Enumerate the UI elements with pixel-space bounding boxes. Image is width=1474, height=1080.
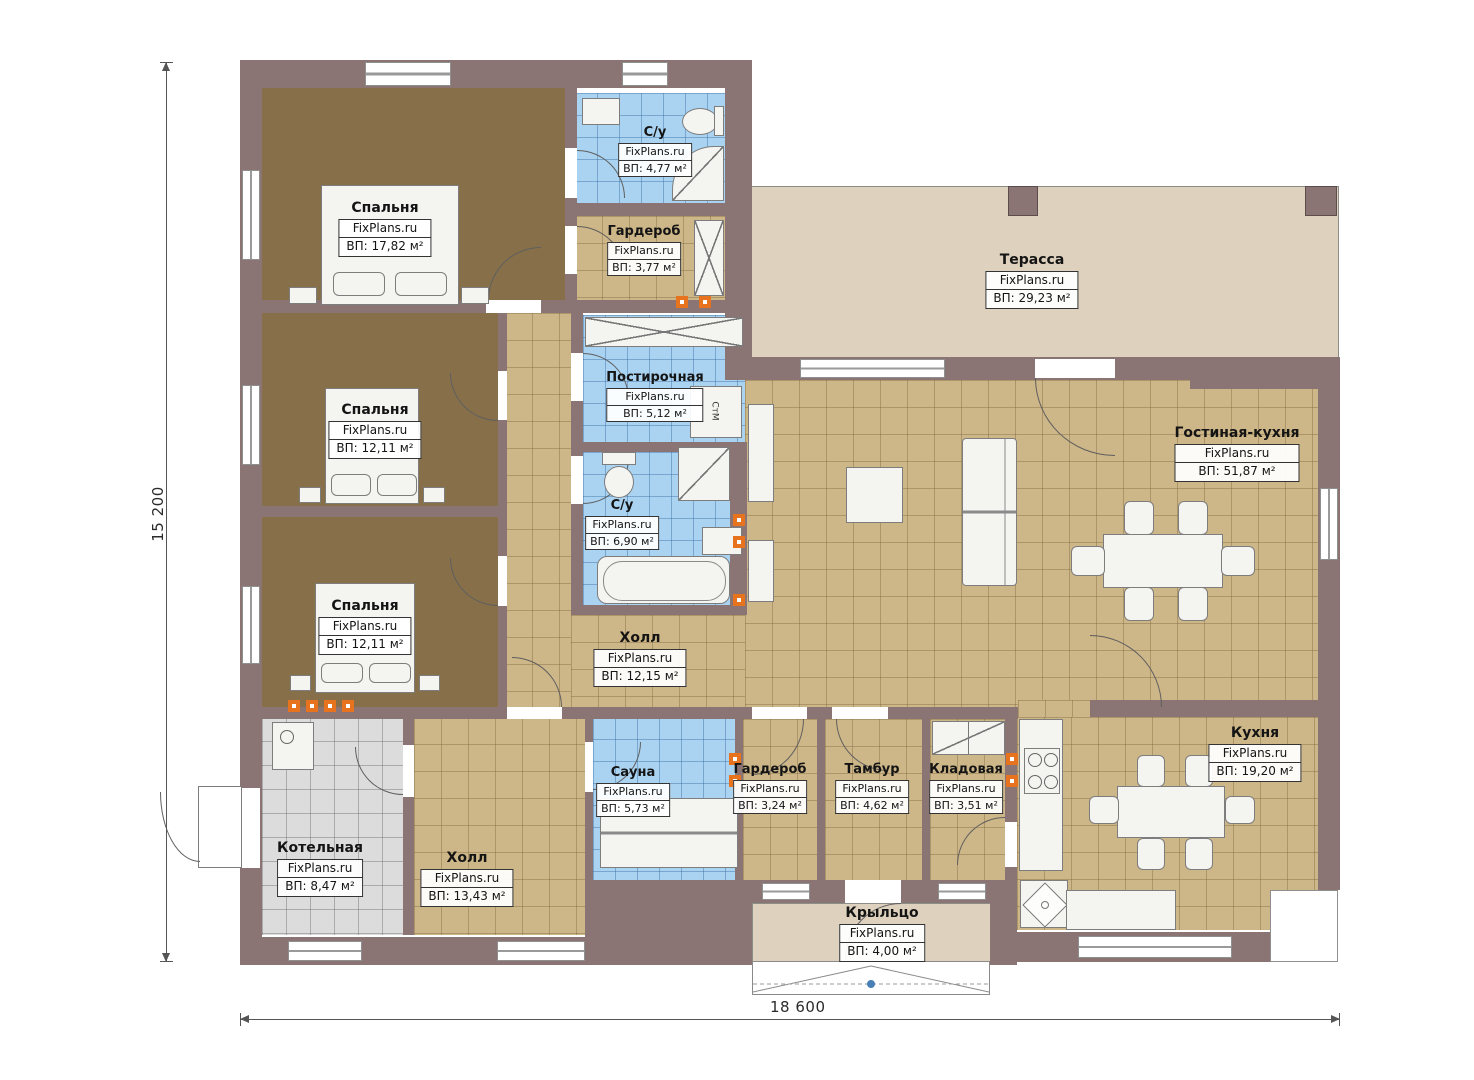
utility-marker (342, 700, 354, 712)
watermark: FixPlans.ru (277, 859, 363, 878)
room-name: Холл (420, 850, 513, 867)
watermark: FixPlans.ru (328, 421, 421, 440)
wall-outer-top (240, 60, 752, 88)
room-name: Постирочная (606, 370, 703, 386)
room-area: ВП: 4,77 м² (618, 161, 692, 178)
watermark: FixPlans.ru (733, 780, 807, 798)
sink-drain (1041, 901, 1049, 909)
kitchen-counter (1019, 719, 1063, 871)
room-label-bedroom-3: Спальня FixPlans.ru ВП: 12,11 м² (318, 598, 411, 655)
watermark: FixPlans.ru (420, 869, 513, 888)
chair (1225, 796, 1255, 824)
watermark: FixPlans.ru (618, 143, 692, 161)
door-gap-laundry (571, 353, 583, 401)
room-name: Терасса (985, 252, 1078, 269)
kitchen-table (1117, 786, 1225, 838)
door-gap-boiler-exterior (242, 788, 260, 868)
utility-marker (1006, 753, 1018, 765)
floor-plan: СтМ (0, 0, 1474, 1080)
chair (1124, 501, 1154, 535)
wall-su1-wardrobe-divider (565, 203, 752, 216)
dimension-arrow-left (240, 1015, 249, 1023)
watermark: FixPlans.ru (985, 271, 1078, 290)
utility-marker (676, 296, 688, 308)
nightstand (290, 675, 311, 691)
room-name: Сауна (596, 765, 670, 781)
door-gap-boiler (403, 745, 414, 797)
dimension-line-horizontal (240, 1019, 1340, 1020)
room-name: Крыльцо (839, 905, 925, 922)
chair (1124, 587, 1154, 621)
utility-marker (306, 700, 318, 712)
watermark: FixPlans.ru (835, 780, 909, 798)
watermark: FixPlans.ru (585, 516, 659, 534)
watermark: FixPlans.ru (1174, 444, 1299, 463)
chair (1221, 546, 1255, 576)
window-living-right (1320, 488, 1338, 560)
wall-bedroom2-3-divider (240, 506, 498, 517)
room-name: Холл (593, 630, 686, 647)
chair (1178, 587, 1208, 621)
wall-su2-bottom (571, 605, 747, 615)
door-gap-bedroom3 (498, 556, 507, 606)
coffee-table (846, 467, 903, 523)
room-name: Спальня (338, 200, 431, 217)
nightstand (461, 287, 489, 304)
door-gap-storage (1005, 822, 1017, 867)
room-label-storage: Кладовая FixPlans.ru ВП: 3,51 м² (929, 762, 1003, 814)
room-name: Гостиная-кухня (1174, 425, 1299, 442)
room-area: ВП: 4,62 м² (835, 798, 909, 815)
room-label-boiler: Котельная FixPlans.ru ВП: 8,47 м² (277, 840, 363, 897)
dining-table (1103, 534, 1223, 588)
bathtub-inner (603, 561, 726, 601)
room-name: Кухня (1208, 725, 1301, 742)
room-area: ВП: 12,11 м² (318, 636, 411, 654)
burner (1028, 753, 1042, 767)
wall-sauna-south-block (585, 880, 752, 937)
door-gap-bedroom2 (498, 371, 507, 420)
watermark: FixPlans.ru (318, 617, 411, 636)
window-bedroom1-top (365, 62, 451, 86)
watermark: FixPlans.ru (593, 649, 686, 668)
burner (1044, 775, 1058, 789)
toilet-tank (602, 452, 636, 465)
exterior-door-leaf (198, 786, 242, 868)
door-gap-terrace (1035, 359, 1115, 378)
porch-steps-ramp (753, 962, 989, 994)
room-name: Кладовая (929, 762, 1003, 778)
watermark: FixPlans.ru (839, 924, 925, 943)
room-name: Спальня (318, 598, 411, 615)
corridor-floor (505, 313, 571, 707)
wardrobe-cabinet (694, 220, 724, 296)
room-area: ВП: 51,87 м² (1174, 463, 1299, 481)
room-area: ВП: 17,82 м² (338, 238, 431, 256)
room-area: ВП: 4,00 м² (839, 943, 925, 961)
room-area: ВП: 3,77 м² (607, 260, 681, 277)
room-label-laundry: Постирочная FixPlans.ru ВП: 5,12 м² (606, 370, 703, 422)
dimension-arrow-right (1331, 1015, 1340, 1023)
porch-steps (752, 961, 990, 995)
wall-living-corner (1190, 357, 1318, 389)
window-entry-left (762, 883, 810, 900)
wall-outer-right (1318, 357, 1340, 890)
nightstand (419, 675, 440, 691)
door-gap-vestibule (832, 707, 888, 719)
washbasin (582, 98, 620, 125)
door-gap-wardrobe1 (565, 226, 577, 274)
bed-pillow (377, 474, 417, 496)
room-name: С/у (618, 125, 692, 141)
room-label-vestibule: Тамбур FixPlans.ru ВП: 4,62 м² (835, 762, 909, 814)
room-area: ВП: 13,43 м² (420, 888, 513, 906)
utility-marker (733, 514, 745, 526)
room-label-terrace: Терасса FixPlans.ru ВП: 29,23 м² (985, 252, 1078, 309)
boiler-unit (272, 722, 314, 770)
chair (1137, 838, 1165, 870)
nightstand (299, 487, 321, 503)
bed-pillow (321, 663, 363, 683)
sofa (962, 438, 1017, 586)
room-area: ВП: 12,15 м² (593, 668, 686, 686)
room-label-hall-2: Холл FixPlans.ru ВП: 13,43 м² (420, 850, 513, 907)
room-name: Тамбур (835, 762, 909, 778)
door-gap-bedroom1 (486, 300, 541, 313)
dimension-label-vertical: 15 200 (149, 486, 167, 542)
utility-marker (733, 594, 745, 606)
room-area: ВП: 3,24 м² (733, 798, 807, 815)
wall-porch-right-column (990, 880, 1017, 965)
window-hall2-bottom (497, 941, 585, 961)
window-kitchen-bottom (1078, 936, 1232, 958)
boiler-dial (280, 730, 294, 744)
door-gap-bathroom1 (565, 148, 577, 198)
room-label-living-kitchen: Гостиная-кухня FixPlans.ru ВП: 51,87 м² (1174, 425, 1299, 482)
stove (1024, 748, 1060, 794)
dimension-label-horizontal: 18 600 (770, 998, 826, 1016)
watermark: FixPlans.ru (607, 242, 681, 260)
room-area: ВП: 6,90 м² (585, 534, 659, 551)
chair (1071, 546, 1105, 576)
door-gap-bathroom2 (571, 456, 583, 504)
shower (678, 447, 730, 501)
chair (1137, 755, 1165, 787)
window-bathroom1-top (622, 62, 668, 86)
room-area: ВП: 5,12 м² (606, 406, 703, 423)
watermark: FixPlans.ru (338, 219, 431, 238)
watermark: FixPlans.ru (596, 783, 670, 801)
room-label-wardrobe-2: Гардероб FixPlans.ru ВП: 3,24 м² (733, 762, 807, 814)
dimension-arrow-up (162, 62, 170, 71)
wall-hall-bottom (240, 707, 1018, 719)
room-area: ВП: 29,23 м² (985, 290, 1078, 308)
room-area: ВП: 12,11 м² (328, 440, 421, 458)
chair (1178, 501, 1208, 535)
room-label-wardrobe-1: Гардероб FixPlans.ru ВП: 3,77 м² (607, 224, 681, 276)
room-label-sauna: Сауна FixPlans.ru ВП: 5,73 м² (596, 765, 670, 817)
kitchen-counter (1066, 890, 1176, 930)
corner-step (1270, 890, 1338, 962)
room-name: Гардероб (733, 762, 807, 778)
toilet-bowl (604, 466, 634, 498)
watermark: FixPlans.ru (929, 780, 1003, 798)
burner (1028, 775, 1042, 789)
door-gap-wardrobe2 (752, 707, 807, 719)
dimension-arrow-down (162, 953, 170, 962)
room-name: Гардероб (607, 224, 681, 240)
terrace-column-left (1008, 186, 1038, 216)
tall-cabinet (748, 404, 774, 502)
room-area: ВП: 5,73 м² (596, 801, 670, 818)
wall-wardrobe2-right (817, 719, 825, 880)
chair (1185, 838, 1213, 870)
room-area: ВП: 3,51 м² (929, 798, 1003, 815)
utility-marker (699, 296, 711, 308)
room-area: ВП: 19,20 м² (1208, 763, 1301, 781)
room-label-bathroom-1: С/у FixPlans.ru ВП: 4,77 м² (618, 125, 692, 177)
room-label-kitchen: Кухня FixPlans.ru ВП: 19,20 м² (1208, 725, 1301, 782)
window-living-top (800, 359, 945, 378)
nightstand (289, 287, 317, 304)
bed-pillow (333, 272, 385, 296)
utility-marker (1006, 775, 1018, 787)
window-boiler-bottom (288, 941, 362, 961)
room-name: Котельная (277, 840, 363, 857)
utility-marker (324, 700, 336, 712)
watermark: FixPlans.ru (606, 388, 703, 406)
room-area: ВП: 8,47 м² (277, 878, 363, 896)
window-bedroom3-left (242, 586, 260, 664)
window-bedroom1-left (242, 170, 260, 260)
utility-marker (288, 700, 300, 712)
utility-marker (733, 536, 745, 548)
terrace-column-right (1305, 186, 1337, 216)
tall-cabinet (748, 540, 774, 602)
room-label-bedroom-2: Спальня FixPlans.ru ВП: 12,11 м² (328, 402, 421, 459)
bed-pillow (331, 474, 371, 496)
room-label-hall-1: Холл FixPlans.ru ВП: 12,15 м² (593, 630, 686, 687)
room-label-porch: Крыльцо FixPlans.ru ВП: 4,00 м² (839, 905, 925, 962)
window-bedroom2-left (242, 385, 260, 465)
storage-shelf (932, 721, 1005, 755)
watermark: FixPlans.ru (1208, 744, 1301, 763)
room-name: Спальня (328, 402, 421, 419)
bed-pillow (395, 272, 447, 296)
door-gap-entry (845, 880, 901, 903)
bed-pillow (369, 663, 411, 683)
burner (1044, 753, 1058, 767)
window-entry-right (938, 883, 986, 900)
washing-machine-label: СтМ (710, 401, 720, 420)
room-label-bathroom-2: С/у FixPlans.ru ВП: 6,90 м² (585, 498, 659, 550)
room-name: С/у (585, 498, 659, 514)
room-label-bedroom-1: Спальня FixPlans.ru ВП: 17,82 м² (338, 200, 431, 257)
laundry-shelf (585, 317, 743, 347)
toilet-tank (714, 106, 724, 136)
nightstand (423, 487, 445, 503)
door-gap-hall1-hall2 (507, 707, 562, 719)
chair (1089, 796, 1119, 824)
door-gap-sauna (585, 742, 593, 792)
